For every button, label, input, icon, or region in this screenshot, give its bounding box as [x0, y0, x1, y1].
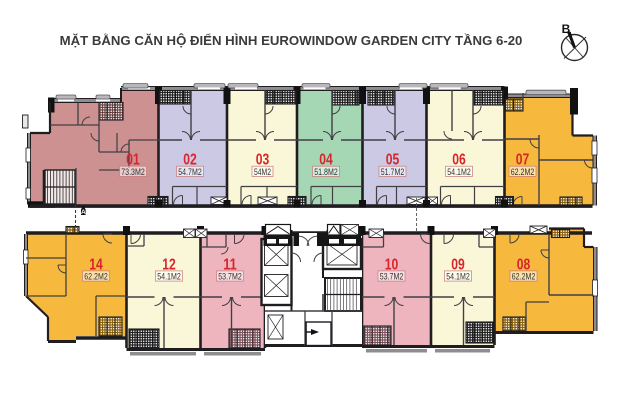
svg-text:51.7M2: 51.7M2 — [381, 167, 405, 177]
svg-text:73.3M2: 73.3M2 — [121, 167, 145, 177]
svg-text:53.7M2: 53.7M2 — [218, 272, 242, 282]
svg-text:54.1M2: 54.1M2 — [447, 167, 471, 177]
svg-text:54.1M2: 54.1M2 — [446, 272, 470, 282]
svg-text:A: A — [81, 209, 86, 216]
svg-text:B: B — [562, 22, 571, 36]
svg-text:62.2M2: 62.2M2 — [511, 167, 535, 177]
svg-text:62.2M2: 62.2M2 — [512, 272, 536, 282]
svg-text:62.2M2: 62.2M2 — [84, 272, 108, 282]
svg-text:54.1M2: 54.1M2 — [157, 272, 181, 282]
svg-text:MẶT BẰNG CĂN HỘ ĐIỂN HÌNH EURO: MẶT BẰNG CĂN HỘ ĐIỂN HÌNH EUROWINDOW GAR… — [60, 33, 523, 48]
svg-text:51.8M2: 51.8M2 — [314, 167, 338, 177]
svg-text:53.7M2: 53.7M2 — [380, 272, 404, 282]
svg-text:54.7M2: 54.7M2 — [178, 167, 202, 177]
svg-text:54M2: 54M2 — [254, 167, 271, 177]
